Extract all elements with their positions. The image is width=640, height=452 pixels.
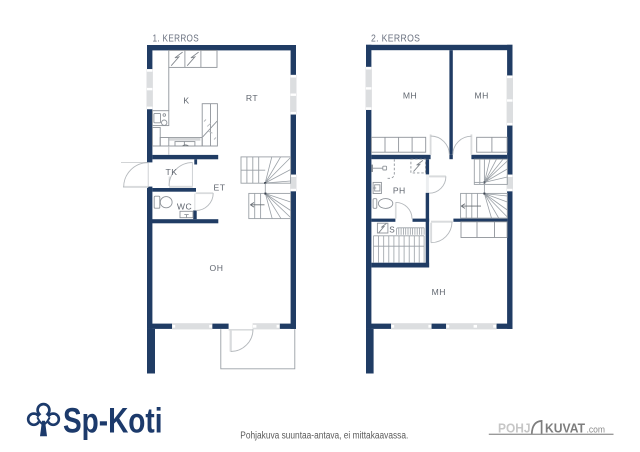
svg-text:WC: WC <box>177 202 192 212</box>
svg-text:TK: TK <box>166 167 178 177</box>
svg-text:POHJ: POHJ <box>498 422 531 436</box>
svg-text:PH: PH <box>393 186 406 196</box>
svg-text:MH: MH <box>432 287 446 297</box>
svg-text:OH: OH <box>210 263 224 273</box>
svg-text:2. KERROS: 2. KERROS <box>371 34 420 45</box>
svg-text:KUVAT: KUVAT <box>545 422 585 436</box>
svg-text:ET: ET <box>214 182 226 192</box>
svg-text:S: S <box>389 225 395 234</box>
svg-text:RT: RT <box>246 93 259 103</box>
svg-text:Sp-Koti: Sp-Koti <box>63 402 163 441</box>
svg-text:MH: MH <box>403 91 417 101</box>
svg-text:MH: MH <box>475 91 489 101</box>
svg-text:K: K <box>183 96 189 106</box>
svg-text:1. KERROS: 1. KERROS <box>153 34 200 45</box>
svg-text:Pohjakuva suuntaa-antava, ei m: Pohjakuva suuntaa-antava, ei mittakaavas… <box>240 431 408 442</box>
